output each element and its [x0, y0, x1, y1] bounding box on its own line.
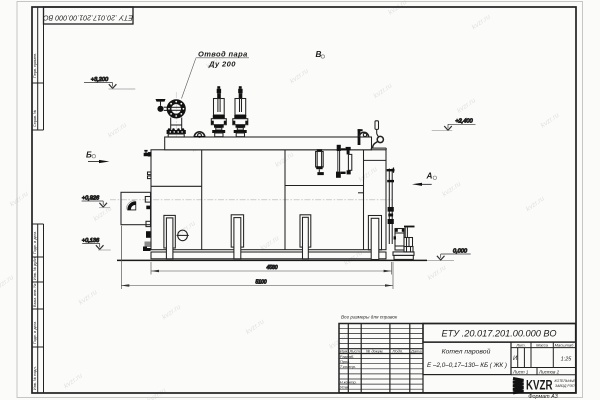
- svg-text:0,000: 0,000: [453, 248, 468, 254]
- svg-text:Подп.: Подп.: [393, 349, 404, 354]
- svg-text:Лист 1: Лист 1: [512, 369, 529, 374]
- svg-text:КОТЕЛЬНЫЙ: КОТЕЛЬНЫЙ: [555, 379, 577, 383]
- svg-text:Утв.: Утв.: [340, 384, 349, 389]
- svg-text:4560: 4560: [266, 265, 277, 271]
- svg-text:ЗАВОД РЭП: ЗАВОД РЭП: [555, 384, 575, 388]
- svg-text:+3,200: +3,200: [91, 77, 109, 83]
- svg-text:Инв. № дубл.: Инв. № дубл.: [33, 256, 37, 280]
- svg-text:Инв. № подл.: Инв. № подл.: [33, 366, 37, 390]
- svg-text:В: В: [316, 50, 322, 59]
- svg-text:ЕТУ .20.017.201.00.000 ВО: ЕТУ .20.017.201.00.000 ВО: [442, 329, 557, 339]
- svg-text:Взам. инв. №: Взам. инв. №: [33, 283, 37, 307]
- svg-text:Все размеры для справок: Все размеры для справок: [341, 315, 398, 320]
- svg-text:Справ. №: Справ. №: [33, 110, 37, 127]
- svg-text:Т.контр.: Т.контр.: [340, 364, 356, 369]
- svg-text:№ докум.: № докум.: [366, 349, 384, 354]
- svg-text:KVZR: KVZR: [526, 378, 553, 393]
- svg-text:Подп. и дата: Подп. и дата: [33, 321, 37, 344]
- svg-text:Масштаб: Масштаб: [555, 342, 574, 347]
- svg-text:Котел паровой: Котел паровой: [442, 348, 491, 356]
- svg-text:А: А: [426, 172, 433, 181]
- svg-text:5100: 5100: [255, 280, 266, 286]
- svg-text:ЕТУ .20.017.201.00.000 ВО: ЕТУ .20.017.201.00.000 ВО: [43, 14, 133, 23]
- svg-text:И: И: [513, 356, 518, 362]
- svg-text:Отвод пара: Отвод пара: [198, 50, 248, 59]
- svg-text:Дата: Дата: [410, 349, 422, 354]
- svg-text:+2,400: +2,400: [455, 119, 473, 125]
- svg-text:Подп. и дата: Подп. и дата: [33, 231, 37, 254]
- svg-text:Перв. примен.: Перв. примен.: [33, 53, 37, 78]
- svg-text:Ду 200: Ду 200: [208, 60, 236, 69]
- svg-text:Е –2,0–0,17–130– КБ ( ЖК ): Е –2,0–0,17–130– КБ ( ЖК ): [427, 362, 507, 369]
- svg-text:+0,136: +0,136: [82, 238, 100, 244]
- svg-text:Формат А3: Формат А3: [528, 394, 558, 400]
- svg-text:1:25: 1:25: [561, 357, 573, 363]
- svg-text:Б: Б: [86, 151, 92, 160]
- svg-text:Листов 2: Листов 2: [538, 369, 560, 374]
- svg-text:Масса: Масса: [536, 342, 549, 347]
- svg-text:+0,926: +0,926: [82, 196, 100, 202]
- svg-text:Лит.: Лит.: [515, 342, 525, 347]
